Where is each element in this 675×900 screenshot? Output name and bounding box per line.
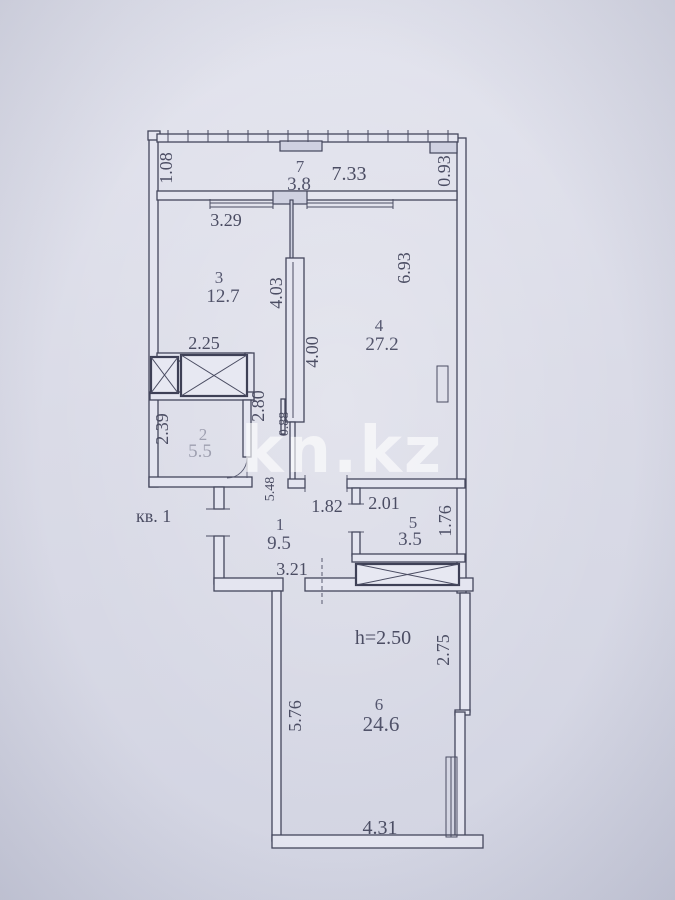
watermark: kn.kz — [241, 414, 443, 488]
dim-balcony-right: 0.93 — [434, 155, 454, 187]
ceiling-height-label: h=2.50 — [355, 627, 411, 649]
dim-balcony-width: 7.33 — [332, 163, 367, 185]
walls — [148, 131, 483, 848]
room4-number: 4 — [375, 316, 384, 335]
room7-area: 3.8 — [287, 174, 311, 195]
floor-plan-drawing: 1.08 7.33 0.93 3.29 2.25 4.03 4.00 6.93 … — [0, 0, 675, 900]
room1-number: 1 — [276, 515, 285, 534]
dim-room6-right: 2.75 — [433, 634, 453, 666]
dimension-labels: 1.08 7.33 0.93 3.29 2.25 4.03 4.00 6.93 … — [152, 152, 455, 839]
room3-area: 12.7 — [206, 286, 239, 307]
dim-room3-bottom: 2.25 — [188, 333, 220, 353]
room4-area: 27.2 — [365, 334, 398, 355]
room6-area: 24.6 — [363, 712, 400, 736]
apartment-number-label: кв. 1 — [136, 506, 171, 526]
room1-area: 9.5 — [267, 533, 291, 554]
dim-room5-top: 2.01 — [368, 493, 400, 513]
room5-area: 3.5 — [398, 529, 422, 550]
dim-balcony-left: 1.08 — [156, 152, 176, 184]
floor-plan-photo: 1.08 7.33 0.93 3.29 2.25 4.03 4.00 6.93 … — [0, 0, 675, 900]
dim-room2-left: 2.39 — [152, 413, 172, 445]
dim-room3-right: 4.03 — [266, 277, 286, 309]
dim-room4-left: 4.00 — [302, 336, 322, 368]
room2-area: 5.5 — [188, 441, 212, 462]
dim-room4-right: 6.93 — [394, 252, 414, 284]
dim-room5-right: 1.76 — [435, 505, 455, 537]
room3-number: 3 — [215, 268, 224, 287]
dim-hall-top: 1.82 — [311, 496, 343, 516]
dim-room3-top: 3.29 — [210, 210, 242, 230]
dim-room6-bottom: 4.31 — [363, 817, 398, 839]
dim-hall-bottom: 3.21 — [276, 559, 308, 579]
dim-room6-left: 5.76 — [285, 700, 305, 732]
